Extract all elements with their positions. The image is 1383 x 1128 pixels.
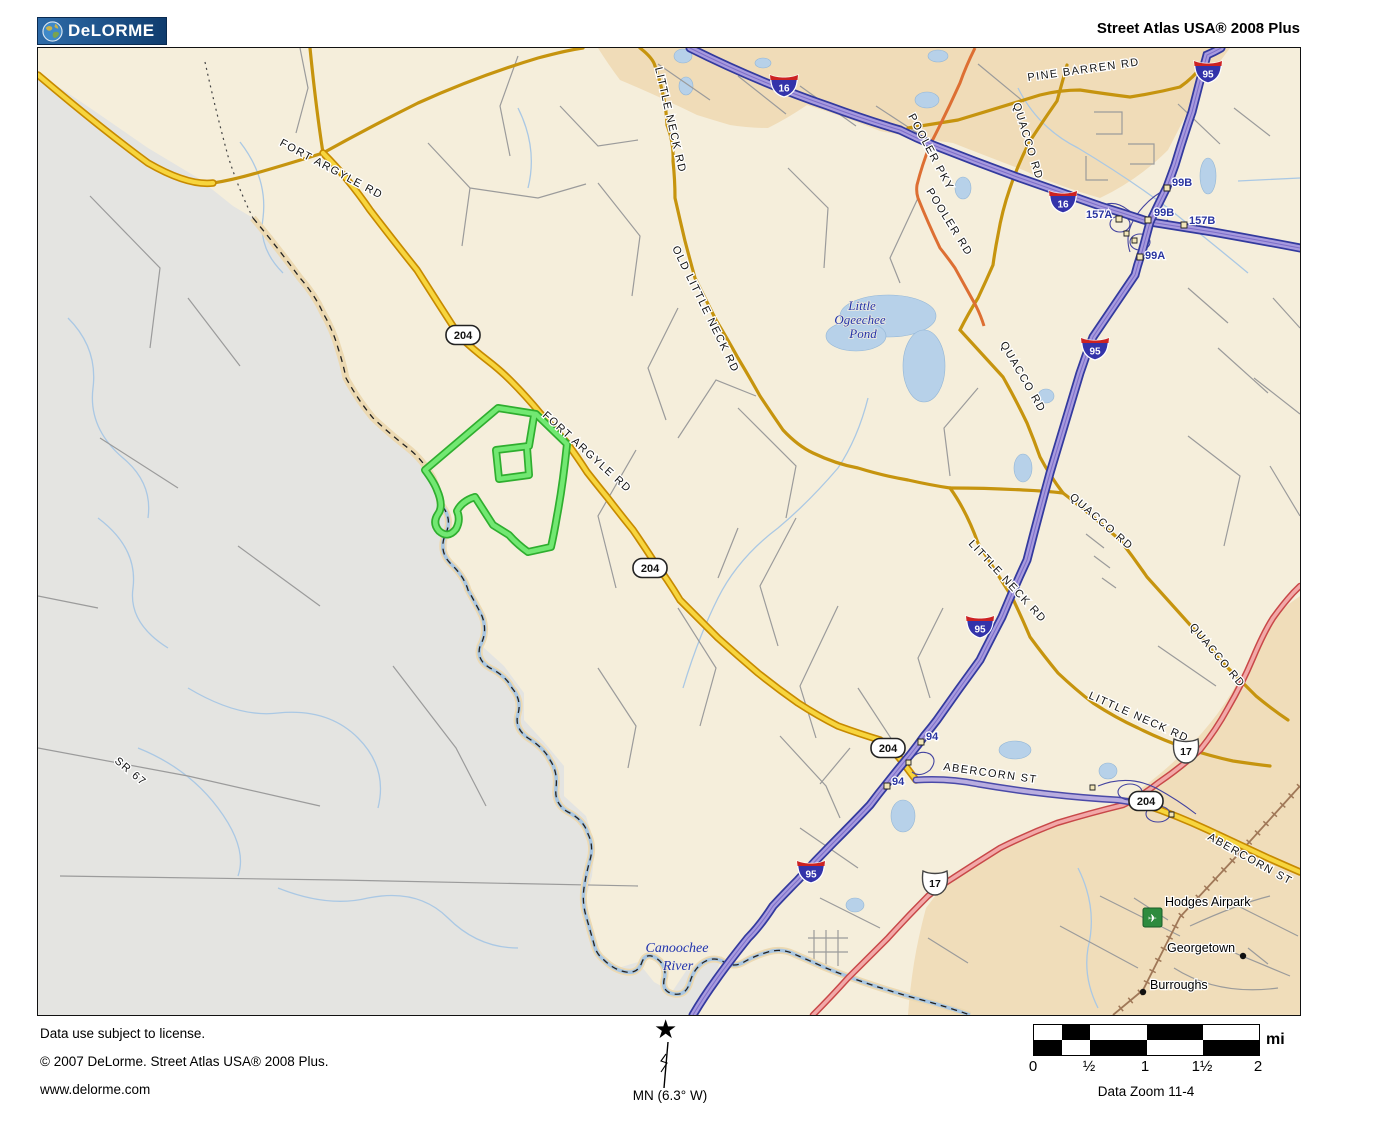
scale-bar-segment bbox=[1062, 1040, 1090, 1055]
burroughs-dot bbox=[1140, 989, 1146, 995]
scale-bar-segment bbox=[1090, 1040, 1147, 1055]
svg-text:95: 95 bbox=[974, 625, 986, 636]
svg-text:95: 95 bbox=[1089, 347, 1101, 358]
license-text: Data use subject to license. bbox=[40, 1026, 205, 1041]
exit-label-94-1: 94 bbox=[926, 731, 939, 743]
svg-text:River: River bbox=[662, 959, 694, 974]
svg-text:✈: ✈ bbox=[1148, 912, 1157, 925]
svg-text:204: 204 bbox=[1137, 796, 1156, 808]
scale-bar-segment bbox=[1062, 1025, 1090, 1040]
shield-sr204-3: 204 bbox=[871, 739, 905, 758]
shield-sr204-2: 204 bbox=[633, 559, 667, 578]
label-burroughs: Burroughs bbox=[1150, 978, 1208, 992]
svg-text:95: 95 bbox=[805, 870, 817, 881]
svg-text:204: 204 bbox=[879, 743, 898, 755]
label-hodges-airpark: Hodges Airpark bbox=[1165, 895, 1251, 909]
scale-tick-label: 2 bbox=[1254, 1058, 1262, 1075]
scale-bar-segment bbox=[1147, 1040, 1203, 1055]
svg-text:Pond: Pond bbox=[848, 326, 877, 341]
exit-label-94-2: 94 bbox=[892, 776, 905, 788]
north-arrow: ★ MN (6.3° W) bbox=[600, 1018, 740, 1118]
shield-us17-1: 17 bbox=[922, 871, 947, 895]
svg-text:204: 204 bbox=[641, 563, 660, 575]
app-title: Street Atlas USA® 2008 Plus bbox=[1097, 20, 1300, 37]
exit-label-157b: 157B bbox=[1189, 215, 1215, 227]
scale-bar-segment bbox=[1090, 1025, 1147, 1040]
svg-text:204: 204 bbox=[454, 330, 473, 342]
scale-unit-label: mi bbox=[1266, 1031, 1285, 1049]
website-text: www.delorme.com bbox=[40, 1082, 150, 1097]
svg-text:17: 17 bbox=[929, 878, 941, 890]
map-viewport[interactable]: ✈ FORT ARGYLE RD FORT ARGYLE RD OLD LITT… bbox=[37, 47, 1301, 1016]
scale-tick-label: 0 bbox=[1029, 1058, 1037, 1075]
globe-icon bbox=[42, 21, 63, 42]
scale-tick-label: 1½ bbox=[1192, 1058, 1213, 1075]
scale-bar-segment bbox=[1203, 1025, 1259, 1040]
shield-sr204-1: 204 bbox=[446, 326, 480, 345]
app-window: DeLORME Street Atlas USA® 2008 Plus bbox=[0, 0, 1383, 1128]
svg-text:17: 17 bbox=[1180, 746, 1192, 758]
svg-text:Canoochee: Canoochee bbox=[646, 941, 709, 956]
shield-us17-2: 17 bbox=[1173, 739, 1198, 763]
svg-text:16: 16 bbox=[778, 84, 790, 95]
copyright-text: © 2007 DeLorme. Street Atlas USA® 2008 P… bbox=[40, 1054, 329, 1069]
scale-tick-label: ½ bbox=[1083, 1058, 1096, 1075]
svg-text:16: 16 bbox=[1057, 200, 1069, 211]
delorme-logo: DeLORME bbox=[37, 17, 167, 45]
logo-text: DeLORME bbox=[68, 21, 155, 41]
scale-bar-segment bbox=[1034, 1040, 1062, 1055]
airport-icon: ✈ bbox=[1143, 908, 1162, 927]
exit-label-99b-2: 99B bbox=[1154, 207, 1174, 219]
scale-bar-segment bbox=[1034, 1025, 1062, 1040]
scale-tick-label: 1 bbox=[1141, 1058, 1149, 1075]
magnetic-north-label: MN (6.3° W) bbox=[600, 1088, 740, 1103]
scale-bar-segment bbox=[1203, 1040, 1259, 1055]
exit-label-99a: 99A bbox=[1145, 250, 1165, 262]
exit-label-99b-1: 99B bbox=[1172, 177, 1192, 189]
svg-text:95: 95 bbox=[1202, 70, 1214, 81]
scale-bar bbox=[1033, 1024, 1260, 1056]
map-canvas[interactable]: ✈ FORT ARGYLE RD FORT ARGYLE RD OLD LITT… bbox=[38, 48, 1300, 1015]
svg-text:Ogeechee: Ogeechee bbox=[834, 312, 885, 327]
data-zoom-label: Data Zoom 11-4 bbox=[1098, 1084, 1195, 1099]
exit-label-157a: 157A bbox=[1086, 209, 1112, 221]
georgetown-dot bbox=[1240, 953, 1246, 959]
scale-bar-segment bbox=[1147, 1025, 1203, 1040]
shield-sr204-4: 204 bbox=[1129, 792, 1163, 811]
label-georgetown: Georgetown bbox=[1167, 941, 1235, 955]
svg-text:Little: Little bbox=[847, 298, 876, 313]
